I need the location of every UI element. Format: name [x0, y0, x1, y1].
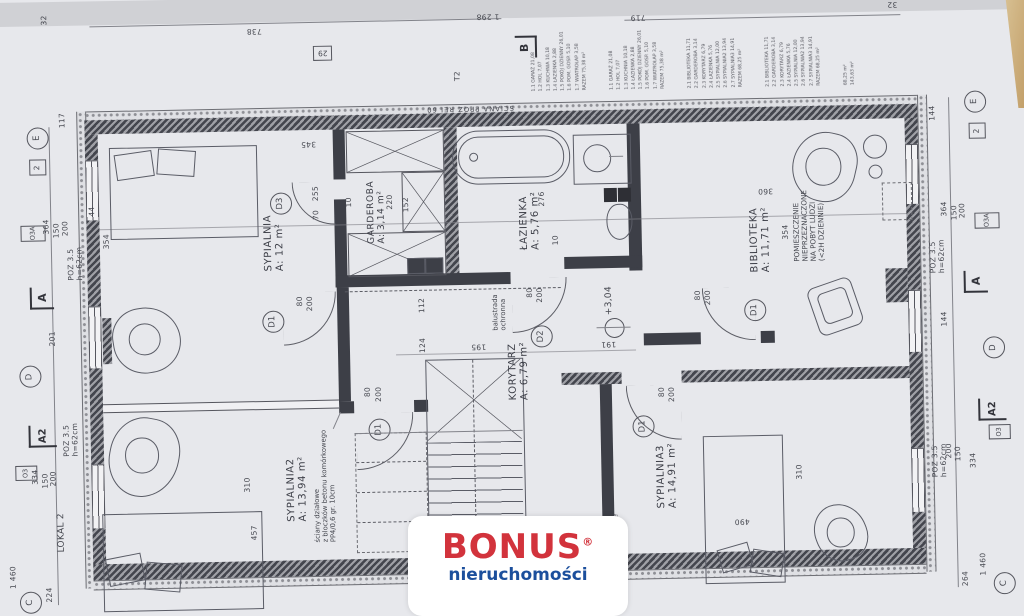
room-label-sypialnia: SYPIALNIAA: 12 m² — [262, 215, 286, 272]
grid-label-2: 2 — [969, 122, 986, 138]
floor-lamp-base — [868, 165, 882, 179]
grid-bubble-d: D — [983, 336, 1005, 358]
dim-label: 334 — [969, 453, 978, 468]
dim-label: 80 — [364, 387, 373, 397]
dim-label: 310 — [795, 464, 804, 479]
grid-bubble-c: C — [994, 572, 1016, 594]
dim-label: 719 — [630, 13, 645, 22]
poz-label: POZ 3.5h=62cm — [929, 239, 947, 273]
room-label-sypialnia3: SYPIALNIA3A: 14,91 m² — [655, 443, 679, 509]
poz-label: POZ 3.5h=62cm — [931, 443, 949, 477]
partition-note: ściany działowez bloczków betonu komórko… — [313, 430, 339, 543]
radiator — [102, 318, 112, 364]
dim-line — [624, 14, 900, 21]
dim-label: 44 — [88, 206, 97, 216]
dim-label: 457 — [250, 525, 259, 540]
door-tag-d1: D1 — [744, 299, 766, 321]
dim-label: 195 — [471, 343, 486, 352]
window-right-3 — [911, 448, 925, 514]
dim-label: 200 — [49, 471, 58, 486]
dim-label: 201 — [49, 331, 58, 346]
dim-label: 70 — [312, 210, 321, 220]
pillow — [750, 549, 785, 578]
dim-label: 200 — [668, 387, 677, 402]
dim-line — [948, 97, 959, 587]
dim-label: 150 — [954, 446, 963, 461]
window-right-2 — [908, 290, 922, 354]
wall-sypialnia3-top — [561, 372, 621, 385]
dim-label: 364 — [42, 219, 51, 234]
room-label-biblioteka: BIBLIOTEKAA: 11,71 m² — [748, 207, 772, 273]
desk-dashed — [882, 182, 913, 221]
room-schedule-legend: 1.1 GARAŻ 21,081.2 HOL 7,071.3 KUCHNIA 1… — [531, 28, 588, 91]
dim-label: 80 — [694, 290, 703, 300]
grid-bubble-c: C — [20, 591, 42, 613]
window-tag-o3: O3 — [989, 424, 1011, 439]
room-schedule-totals: 68,25 m²143,63 m² — [843, 23, 857, 85]
section-marker-a2: A2 — [28, 425, 56, 448]
toilet-tank — [618, 188, 631, 202]
grid-bubble-d: D — [19, 365, 41, 387]
dim-label: 144 — [928, 105, 937, 120]
dim-label: 10 — [552, 235, 561, 245]
dim-label: 1 298 — [476, 12, 499, 21]
partition-wall — [103, 399, 339, 413]
dim-label: 200 — [375, 387, 384, 402]
dim-label: 124 — [419, 338, 428, 353]
pillow — [156, 148, 196, 176]
brand-subtitle: nieruchomości — [408, 565, 628, 585]
dim-label: 10 — [345, 197, 354, 207]
wall-garderoba-left — [334, 199, 348, 287]
armchair-seat — [805, 147, 842, 186]
window-left-2 — [88, 306, 102, 370]
dim-label: 354 — [782, 224, 791, 239]
wall-biblioteka-bottom — [644, 332, 701, 345]
dim-label: 364 — [940, 201, 949, 216]
outer-wall-left — [89, 368, 104, 464]
outer-wall-right — [904, 118, 918, 144]
section-marker-a2: A2 — [978, 398, 1006, 421]
dim-label: 224 — [46, 587, 55, 602]
section-marker-a: A — [30, 287, 54, 309]
scale-label: 1 460 — [979, 553, 988, 576]
dim-label: 310 — [244, 477, 253, 492]
outer-wall-left — [86, 220, 101, 306]
radiator — [885, 268, 908, 302]
level-label: +3,04 — [604, 286, 615, 315]
dim-label: 112 — [418, 298, 427, 313]
dim-label: 117 — [58, 113, 67, 128]
grid-label-29: 29 — [313, 46, 332, 61]
dim-label: 32 — [40, 15, 49, 25]
wall-sypialnia3-top — [681, 366, 909, 383]
dim-label: 360 — [758, 187, 773, 196]
grid-bubble-e: E — [26, 127, 48, 149]
room-schedule-legend: 2.1 BIBLIOTEKA 11,712.2 GARDEROBA 3,142.… — [765, 24, 822, 87]
dim-label: 490 — [734, 517, 749, 526]
grid-label-t2: T2 — [453, 71, 462, 81]
dim-label: 334 — [31, 470, 40, 485]
dim-label: 345 — [301, 140, 316, 149]
floor-lamp — [863, 134, 887, 158]
dim-label: 354 — [103, 234, 112, 249]
scanned-floor-plan: { "brand":{"name":"BONUS","reg":"®","sub… — [0, 0, 1024, 606]
wardrobe — [346, 129, 445, 173]
section-marker-a: A — [964, 270, 988, 292]
room-schedule-legend: 1.1 GARAŻ 21,081.2 HOL 7,071.3 KUCHNIA 1… — [609, 27, 666, 90]
dim-line — [89, 18, 501, 27]
wall-sypialnia2-door — [339, 401, 354, 413]
lokal2-label: LOKAL 2 — [56, 513, 67, 553]
washer — [407, 258, 425, 274]
dim-label: 255 — [312, 186, 321, 201]
dim-label: 191 — [601, 340, 616, 349]
armchair-seat — [826, 517, 855, 548]
dim-label: 200 — [61, 221, 70, 236]
scale-label: 1 460 — [9, 566, 18, 589]
wall-corridor-left — [337, 287, 351, 401]
room-label-pomieszczenie: POMIESZCZENIENIEPRZEZNACZONE NA POBYT LU… — [792, 190, 827, 262]
dim-label: 200 — [536, 287, 545, 302]
room-schedule-legend: 2.1 BIBLIOTEKA 11,712.2 GARDEROBA 3,142.… — [687, 25, 744, 88]
dim-label: 152 — [402, 197, 411, 212]
registered-mark: ® — [582, 536, 594, 549]
wall-lazienka-bottom — [564, 255, 642, 269]
door-tag-d2: D2 — [531, 325, 553, 347]
dim-label: 200 — [306, 296, 315, 311]
wall-garderoba-left — [333, 129, 346, 179]
dim-label: 264 — [962, 571, 971, 586]
dim-label: 200 — [704, 290, 713, 305]
dim-label: 276 — [538, 191, 547, 206]
pillow — [144, 562, 182, 593]
room-label-korytarz: KORYTARZA: 6,79 m² — [507, 342, 531, 401]
dim-label: 200 — [958, 203, 967, 218]
dim-label: 80 — [296, 296, 305, 306]
outer-wall-left — [85, 134, 99, 160]
bonus-watermark: BONUS® nieruchomości — [408, 516, 628, 616]
dim-label: 144 — [940, 311, 949, 326]
dim-label: 738 — [246, 27, 261, 36]
door-tag-d1: D1 — [632, 415, 654, 437]
outer-wall-right — [909, 352, 924, 448]
grid-bubble-e: E — [964, 90, 986, 112]
leader-line — [333, 412, 341, 429]
wall-biblioteka-bottom-stub — [761, 331, 775, 343]
armchair-seat — [125, 437, 160, 474]
poz-label: POZ 3.5h=62cm — [62, 423, 80, 457]
dim-label: 220 — [386, 194, 395, 209]
pillow — [114, 150, 155, 181]
poz-label: POZ 3.5h=62cm — [67, 247, 85, 281]
door-tag-d1: D1 — [262, 311, 284, 333]
dim-label: 80 — [658, 387, 667, 397]
brand-name: BONUS® — [408, 530, 628, 564]
door-tag-d3: D3 — [270, 192, 292, 214]
grid-label-2: 2 — [29, 159, 46, 175]
outer-wall-right — [912, 512, 926, 548]
window-tag-o3a: O3A — [974, 212, 999, 228]
washer — [425, 257, 443, 273]
balustrade-note: balustradaochronna — [492, 294, 508, 331]
dim-label: 32 — [887, 0, 897, 9]
dim-label: 80 — [526, 288, 535, 298]
room-label-sypialnia2: SYPIALNIA2A: 13,94 m² — [285, 456, 309, 522]
toilet-tank — [604, 188, 617, 202]
room-label-garderoba: GARDEROBAA: 3,14 m² — [366, 180, 388, 243]
